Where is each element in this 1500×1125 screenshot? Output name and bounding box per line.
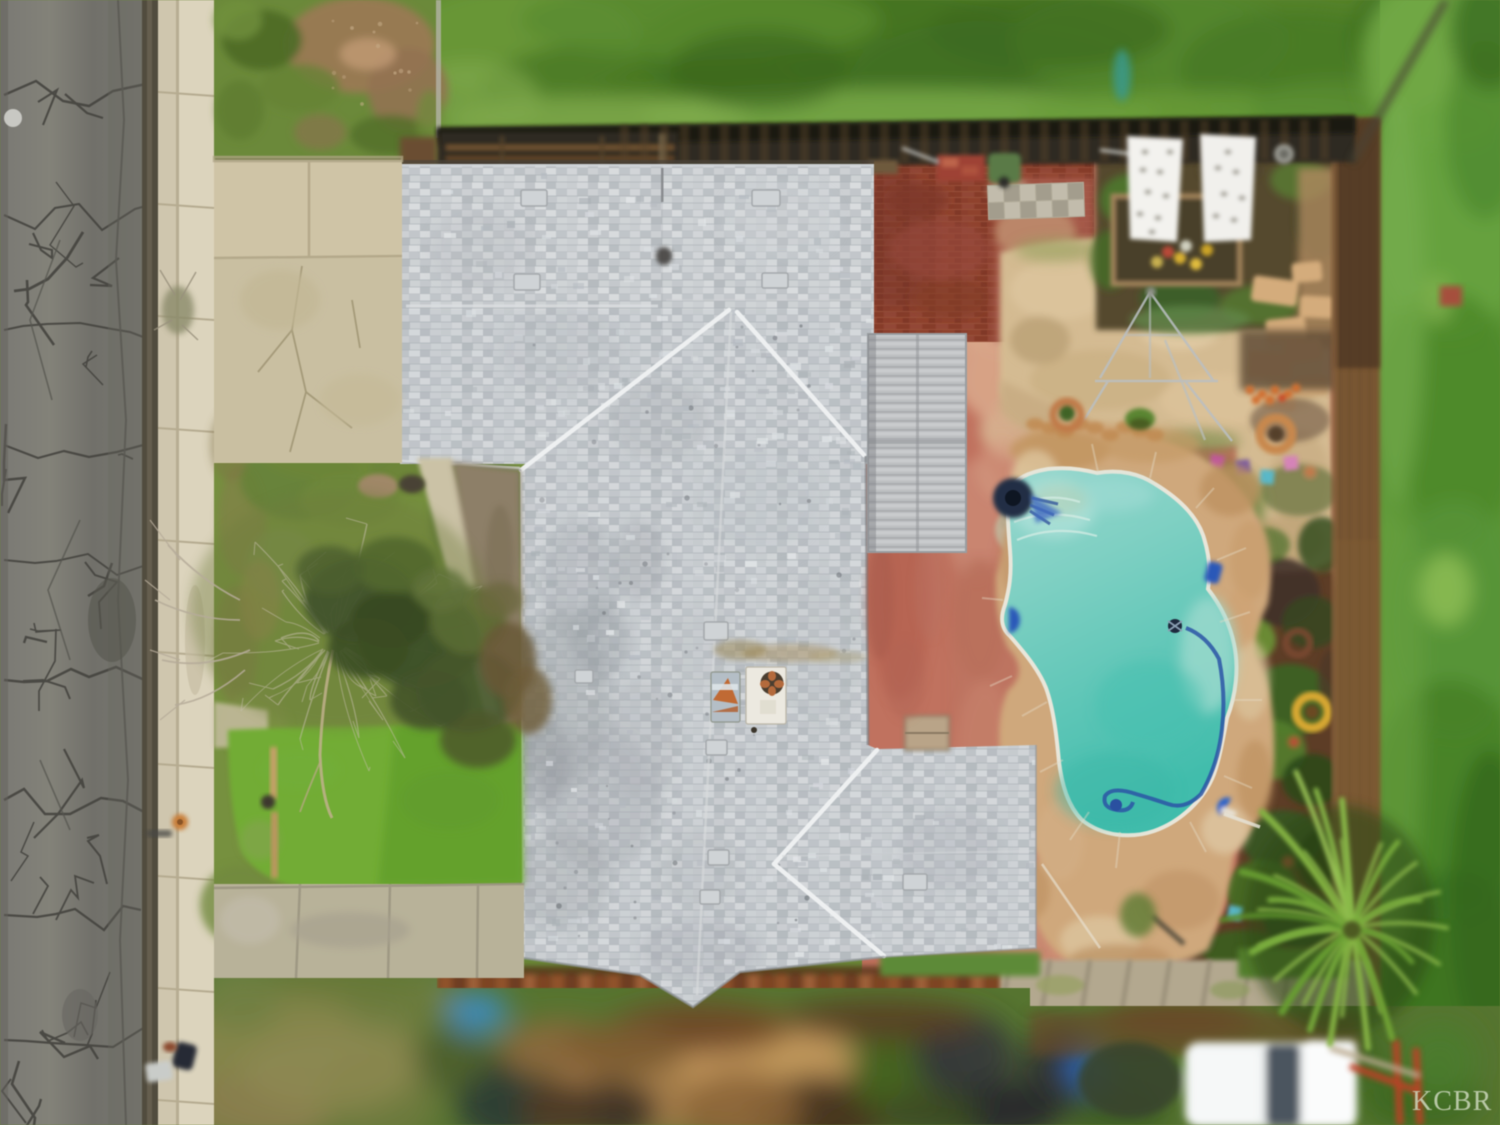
svg-text:KCBR: KCBR: [1412, 1086, 1492, 1117]
